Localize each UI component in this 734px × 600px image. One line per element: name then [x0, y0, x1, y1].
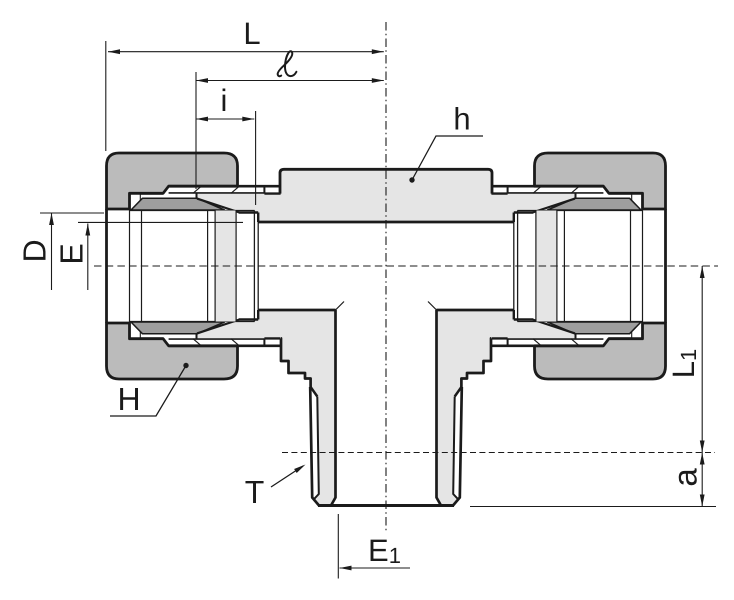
- svg-text:h: h: [453, 102, 470, 137]
- svg-text:a: a: [667, 468, 704, 487]
- svg-text:L: L: [243, 16, 260, 51]
- svg-text:T: T: [245, 474, 265, 510]
- svg-text:i: i: [221, 83, 228, 118]
- svg-text:E: E: [54, 243, 90, 264]
- svg-text:H: H: [117, 381, 140, 417]
- svg-text:D: D: [17, 239, 53, 262]
